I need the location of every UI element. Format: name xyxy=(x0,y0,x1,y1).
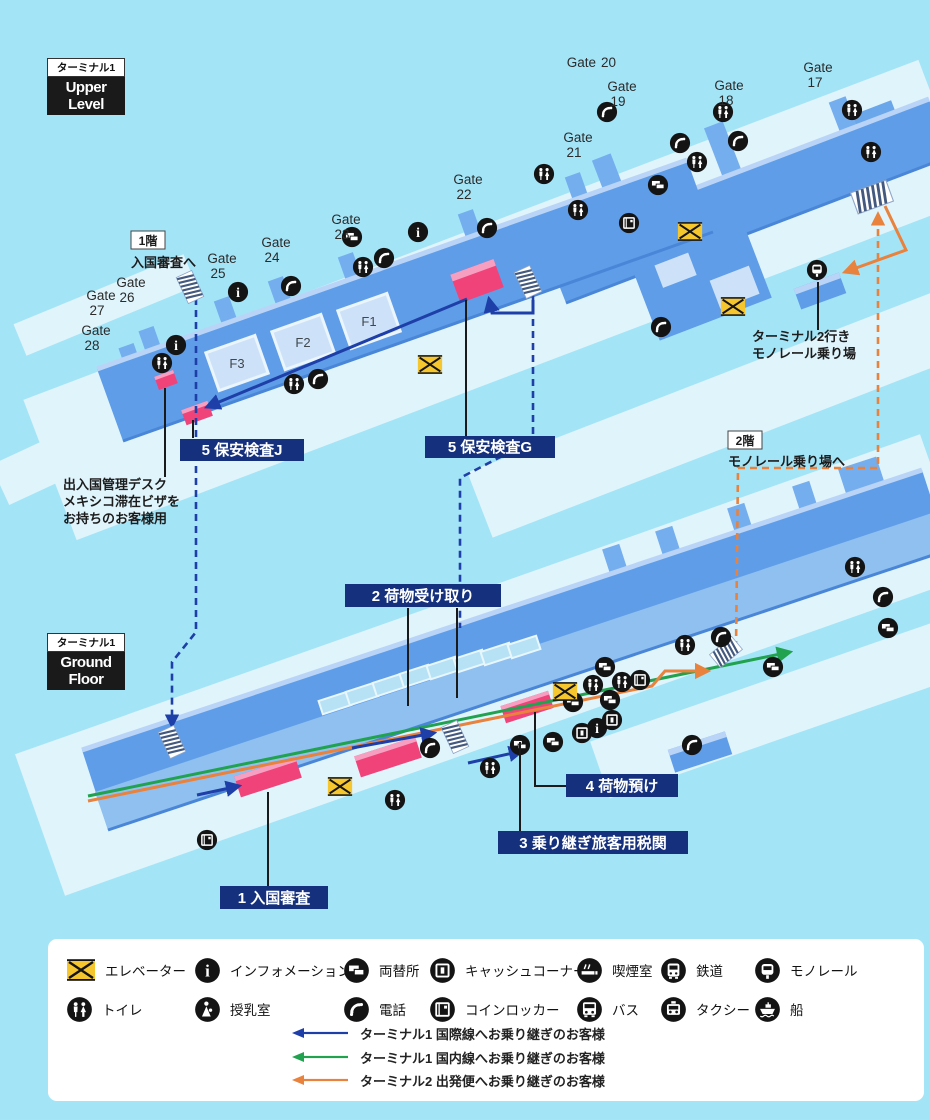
gate-label: Gate xyxy=(81,323,110,338)
legend-panel: エレベーター インフォメーション 両替所 キャッシュコーナー 喫煙室 鉄道 モノ… xyxy=(48,939,924,1101)
legend-item-railway: 鉄道 xyxy=(660,955,723,985)
gate-number: 22 xyxy=(456,187,471,202)
phone-icon xyxy=(670,133,690,153)
legend-route-domestic: ターミナル1 国内線へお乗り継ぎのお客様 xyxy=(292,1049,605,1065)
legend-item-currency-exchange: 両替所 xyxy=(343,955,420,985)
elevator-icon xyxy=(328,777,352,796)
currency-exchange-icon xyxy=(543,732,563,752)
cash-corner-icon xyxy=(572,723,592,743)
floor-2-label: 2階 xyxy=(736,433,755,448)
immigration-desk-note-line2: メキシコ滞在ビザを xyxy=(63,494,180,509)
toilet-icon xyxy=(353,257,373,277)
legend-label: バス xyxy=(612,999,639,1019)
gate-label: Gate xyxy=(803,60,832,75)
floor-title: Upper Level xyxy=(47,77,125,115)
gate-label: Gate xyxy=(453,172,482,187)
gate-number: 19 xyxy=(610,94,625,109)
phone-icon xyxy=(308,369,328,389)
gate-label: Gate xyxy=(567,55,596,70)
toilet-icon xyxy=(675,635,695,655)
legend-label: コインロッカー xyxy=(465,999,560,1019)
legend-item-bus: バス xyxy=(576,994,639,1024)
information-icon xyxy=(228,282,248,302)
taxi-icon xyxy=(660,996,687,1023)
toilet-icon xyxy=(842,100,862,120)
phone-icon xyxy=(281,276,301,296)
route-label: ターミナル2 出発便へお乗り継ぎのお客様 xyxy=(360,1071,605,1090)
toilet-icon xyxy=(66,996,93,1023)
gate-number: 18 xyxy=(718,93,733,108)
legend-item-smoking-room: 喫煙室 xyxy=(576,955,653,985)
route-label: ターミナル1 国内線へお乗り継ぎのお客様 xyxy=(360,1048,605,1067)
terminal-tag: ターミナル1 xyxy=(47,58,125,77)
gate-label: Gate xyxy=(714,78,743,93)
room-label: F3 xyxy=(229,356,244,371)
phone-icon xyxy=(728,131,748,151)
legend-label: トイレ xyxy=(102,999,143,1019)
toilet-icon xyxy=(534,164,554,184)
legend-item-taxi: タクシー xyxy=(660,994,750,1024)
phone-icon xyxy=(711,627,731,647)
escalator-icon xyxy=(176,270,204,303)
route-arrow-international xyxy=(292,1027,350,1039)
railway-icon xyxy=(660,957,687,984)
phone-icon xyxy=(343,996,370,1023)
upper-level-tag: ターミナル1 Upper Level xyxy=(47,58,125,115)
legend-item-monorail: モノレール xyxy=(754,955,858,985)
phone-icon xyxy=(651,317,671,337)
route-arrow-domestic xyxy=(292,1051,350,1063)
phone-icon xyxy=(682,735,702,755)
gate-label: Gate xyxy=(563,130,592,145)
floor-title: Ground Floor xyxy=(47,652,125,690)
toilet-icon xyxy=(152,353,172,373)
to-immigration-label: 入国審査へ xyxy=(131,255,196,270)
gate-number: 26 xyxy=(119,290,134,305)
legend-label: 鉄道 xyxy=(696,960,723,980)
legend-label: エレベーター xyxy=(105,960,186,980)
legend-item-nursing-room: 授乳室 xyxy=(194,994,271,1024)
toilet-icon xyxy=(583,675,603,695)
gate-label: Gate xyxy=(86,288,115,303)
route-arrow-terminal2 xyxy=(292,1074,350,1086)
immigration-desk-note-line3: お持ちのお客様用 xyxy=(63,511,167,526)
gate-number: 28 xyxy=(84,338,99,353)
toilet-icon xyxy=(568,200,588,220)
legend-item-ship: 船 xyxy=(754,994,804,1024)
immigration-desk-note-line1: 出入国管理デスク xyxy=(63,477,167,492)
security-check-g-label: 5 保安検査G xyxy=(448,438,532,456)
legend-label: 喫煙室 xyxy=(612,960,653,980)
monorail-t2-label-line1: ターミナル2行き xyxy=(752,329,850,344)
legend-item-cash-corner: キャッシュコーナー xyxy=(429,955,587,985)
ground-floor-tag: ターミナル1 Ground Floor xyxy=(47,633,125,690)
monorail-icon xyxy=(754,957,781,984)
legend-item-information: インフォメーション xyxy=(194,955,351,985)
ship-icon xyxy=(754,996,781,1023)
legend-label: 授乳室 xyxy=(230,999,271,1019)
legend-item-coin-locker: コインロッカー xyxy=(429,994,560,1024)
monorail-t2-label-line2: モノレール乗り場 xyxy=(752,346,856,361)
legend-label: 電話 xyxy=(379,999,406,1019)
bus-icon xyxy=(576,996,603,1023)
immigration-label: 1 入国審査 xyxy=(238,889,312,907)
coin-locker-icon xyxy=(197,830,217,850)
toilet-icon xyxy=(284,374,304,394)
elevator-icon xyxy=(66,958,96,982)
information-icon xyxy=(408,222,428,242)
gate-label: Gate xyxy=(331,212,360,227)
legend-route-international: ターミナル1 国際線へお乗り継ぎのお客様 xyxy=(292,1025,605,1041)
currency-exchange-icon xyxy=(648,175,668,195)
legend-label: タクシー xyxy=(696,999,750,1019)
transfer-customs-label: 3 乗り継ぎ旅客用税関 xyxy=(519,834,667,852)
phone-icon xyxy=(873,587,893,607)
gate-label: Gate xyxy=(607,79,636,94)
phone-icon xyxy=(374,248,394,268)
monorail-icon xyxy=(807,260,827,280)
legend-item-toilet: トイレ xyxy=(66,994,143,1024)
elevator-icon xyxy=(678,222,702,241)
terminal-map: i xyxy=(0,0,930,935)
toilet-icon xyxy=(845,557,865,577)
gate-number: 23 xyxy=(334,227,349,242)
room-label: F2 xyxy=(295,335,310,350)
toilet-icon xyxy=(385,790,405,810)
nursing-room-icon xyxy=(194,996,221,1023)
toilet-icon xyxy=(687,152,707,172)
phone-icon xyxy=(477,218,497,238)
legend-label: キャッシュコーナー xyxy=(465,960,587,980)
gate-label: Gate xyxy=(116,275,145,290)
baggage-claim-label: 2 荷物受け取り xyxy=(372,587,475,605)
cash-corner-icon xyxy=(429,957,456,984)
smoking-room-icon xyxy=(576,957,603,984)
toilet-icon xyxy=(861,142,881,162)
gate-number: 27 xyxy=(89,303,104,318)
cash-corner-icon xyxy=(602,710,622,730)
elevator-icon xyxy=(721,297,745,316)
currency-exchange-icon xyxy=(343,957,370,984)
legend-route-terminal2: ターミナル2 出発便へお乗り継ぎのお客様 xyxy=(292,1072,605,1088)
phone-icon xyxy=(420,738,440,758)
currency-exchange-icon xyxy=(878,618,898,638)
legend-label: インフォメーション xyxy=(230,960,351,980)
legend-item-phone: 電話 xyxy=(343,994,406,1024)
gate-label: Gate xyxy=(261,235,290,250)
gate-label: Gate xyxy=(207,251,236,266)
legend-item-elevator: エレベーター xyxy=(66,955,186,985)
legend-label: モノレール xyxy=(790,960,858,980)
currency-exchange-icon xyxy=(595,657,615,677)
gate-number: 20 xyxy=(601,55,616,70)
coin-locker-icon xyxy=(619,213,639,233)
information-icon xyxy=(194,957,221,984)
gate-number: 25 xyxy=(210,266,225,281)
to-monorail-label: モノレール乗り場へ xyxy=(728,454,845,469)
currency-exchange-icon xyxy=(763,657,783,677)
gate-number: 24 xyxy=(264,250,280,265)
terminal-tag: ターミナル1 xyxy=(47,633,125,652)
toilet-icon xyxy=(612,672,632,692)
route-label: ターミナル1 国際線へお乗り継ぎのお客様 xyxy=(360,1024,605,1043)
legend-label: 船 xyxy=(790,999,804,1019)
room-label: F1 xyxy=(361,314,376,329)
gate-number: 21 xyxy=(566,145,581,160)
floor-1-label: 1階 xyxy=(139,233,158,248)
coin-locker-icon xyxy=(429,996,456,1023)
toilet-icon xyxy=(480,758,500,778)
elevator-icon xyxy=(418,355,442,374)
currency-exchange-icon xyxy=(600,690,620,710)
legend-label: 両替所 xyxy=(379,960,420,980)
elevator-icon xyxy=(553,682,577,701)
coin-locker-icon xyxy=(630,670,650,690)
gate-number: 17 xyxy=(807,75,822,90)
security-check-j-label: 5 保安検査J xyxy=(202,441,283,459)
baggage-drop-label: 4 荷物預け xyxy=(586,777,659,795)
information-icon xyxy=(166,335,186,355)
